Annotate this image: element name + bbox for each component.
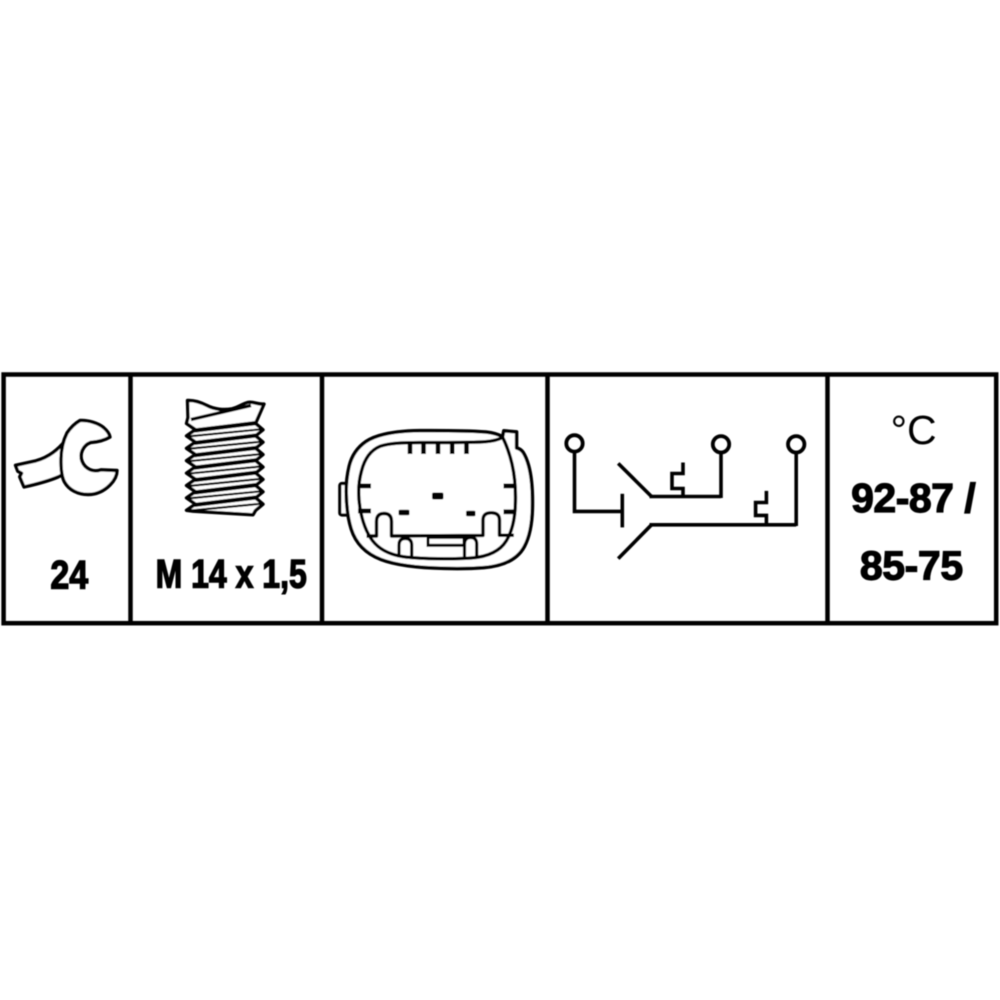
svg-text:°C: °C (891, 407, 937, 453)
svg-text:85-75: 85-75 (860, 543, 963, 589)
svg-text:92-87 /: 92-87 / (851, 475, 975, 521)
svg-text:M 14 x 1,5: M 14 x 1,5 (156, 551, 307, 596)
svg-text:24: 24 (50, 552, 88, 597)
